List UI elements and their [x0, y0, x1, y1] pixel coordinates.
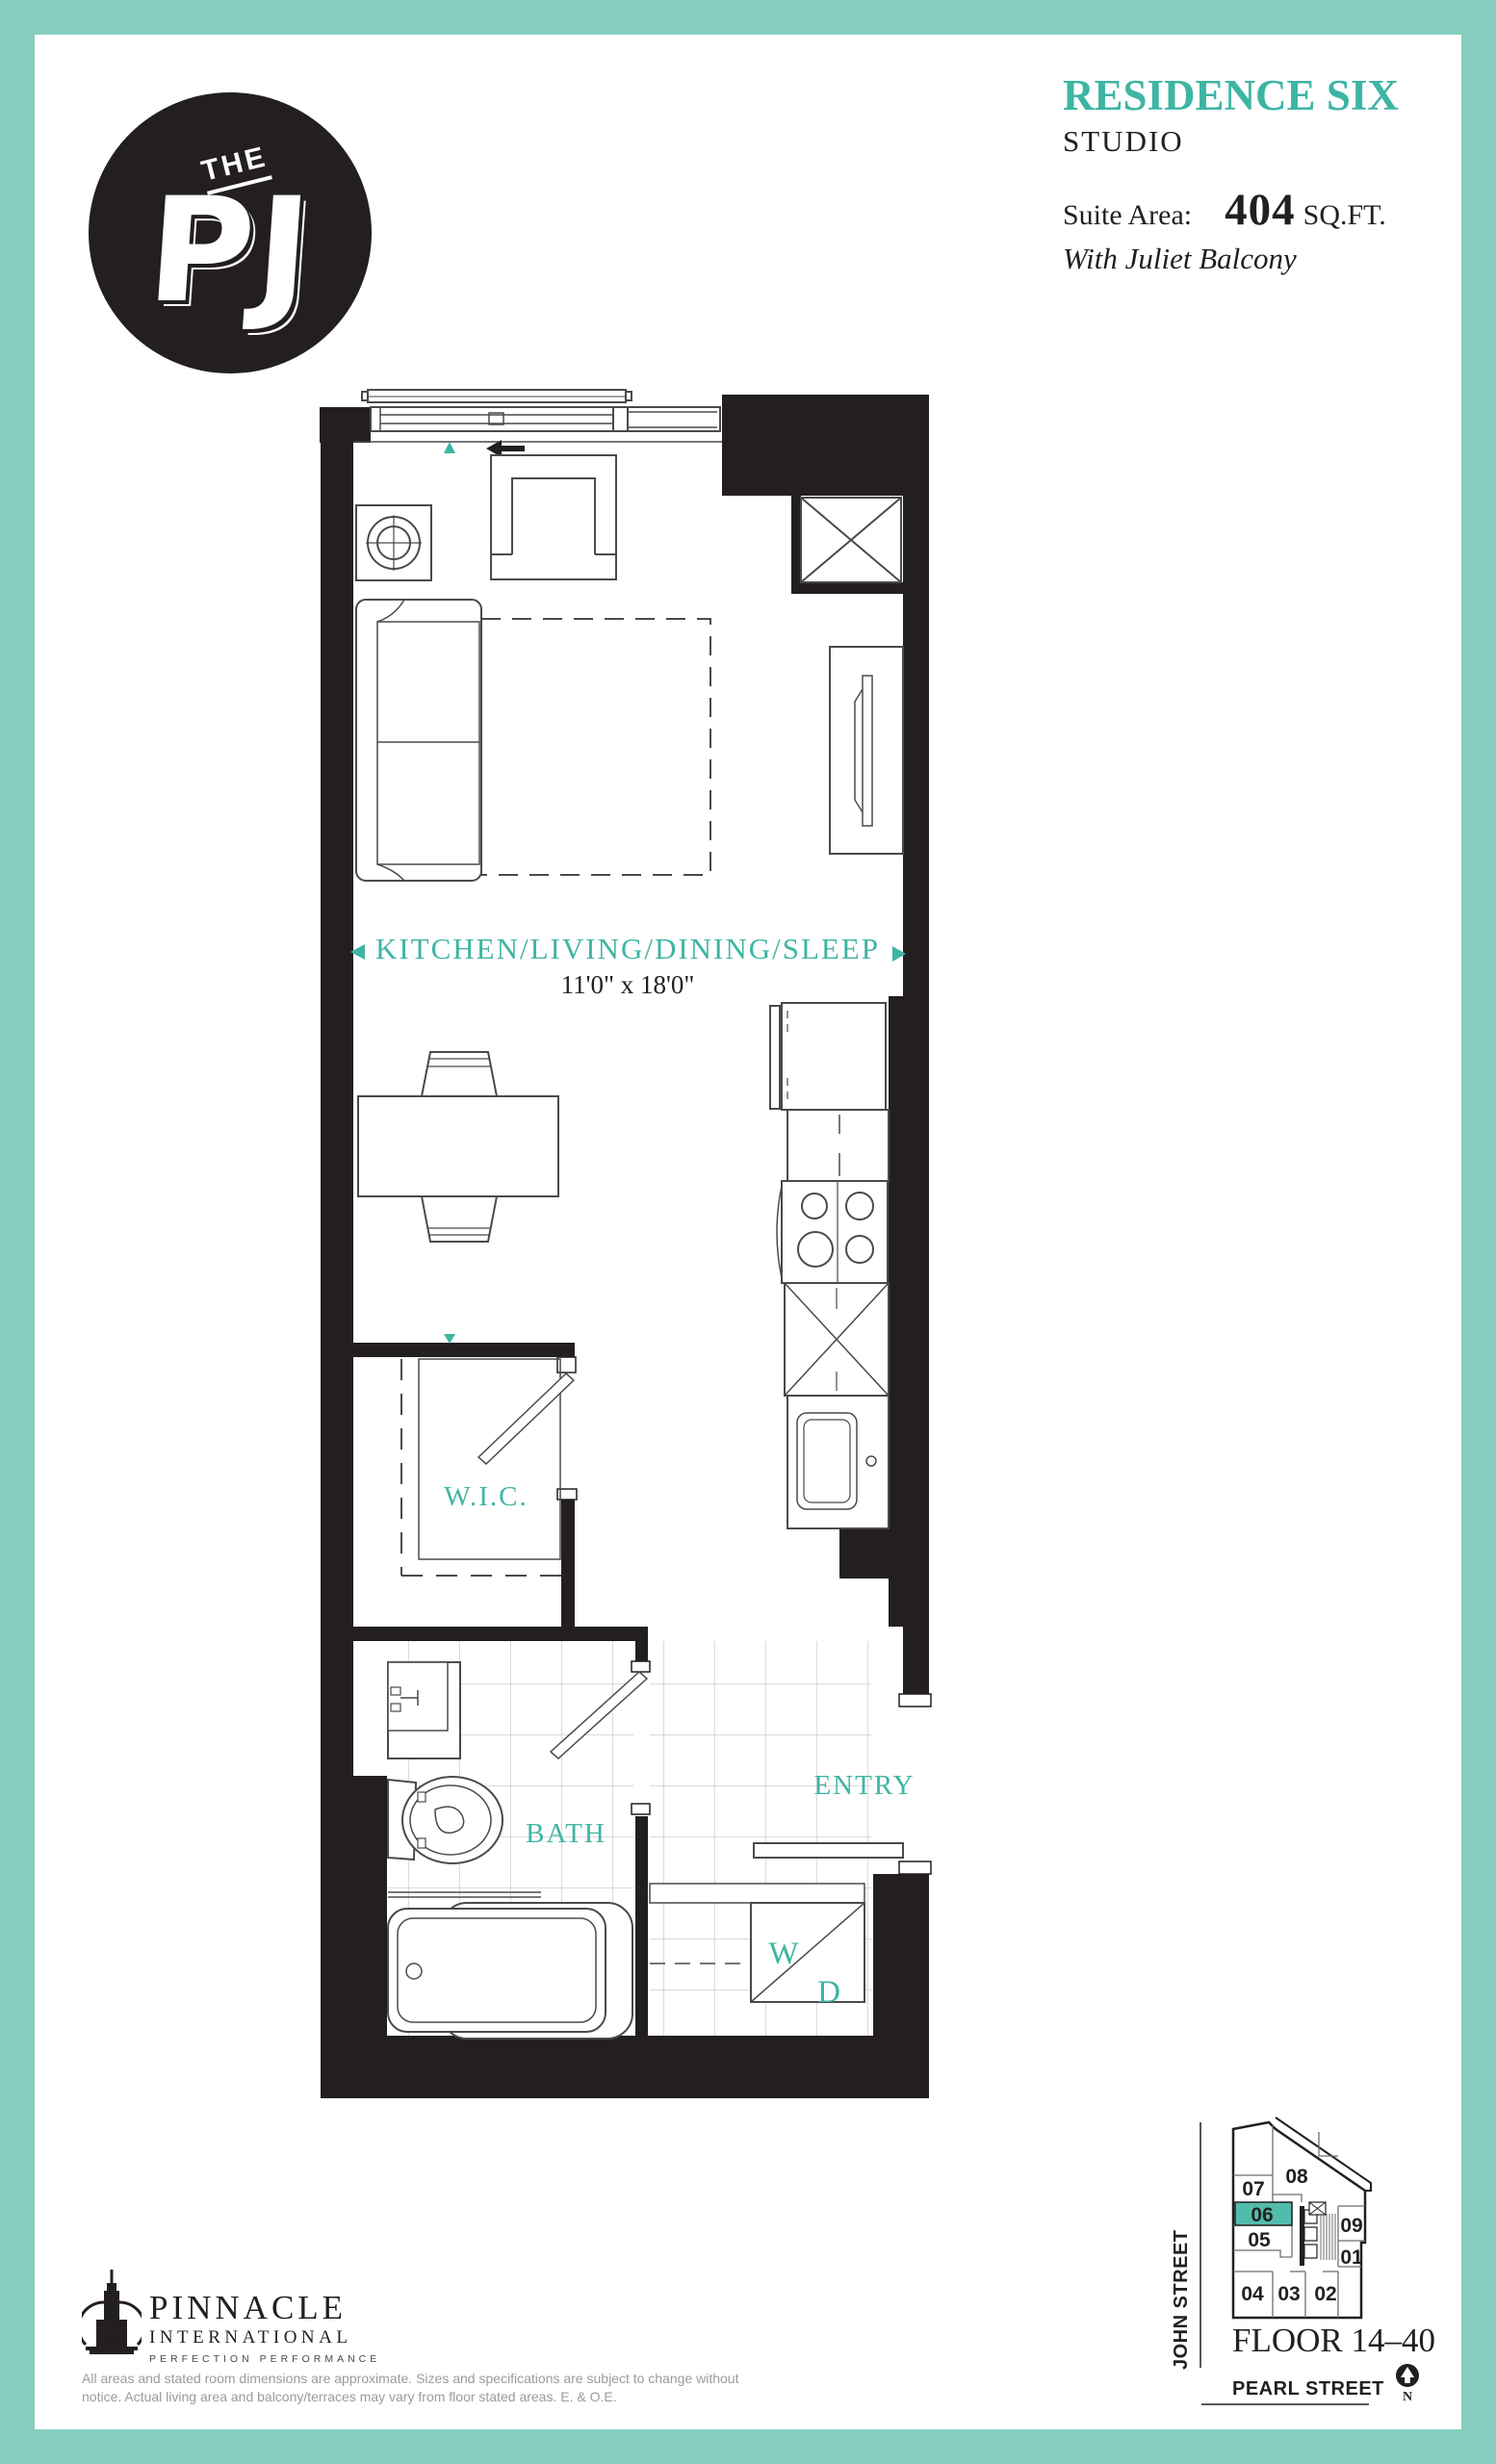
north-compass: N: [1396, 2364, 1419, 2404]
keyplan-street-left: JOHN STREET: [1171, 2229, 1192, 2370]
washer-label: W: [768, 1937, 800, 1971]
keyplan-street-bottom: PEARL STREET: [1232, 2378, 1384, 2400]
dining-table: [358, 1052, 558, 1242]
suite-type: STUDIO: [1063, 124, 1409, 159]
brand-name-2: INTERNATIONAL: [149, 2327, 380, 2348]
suite-area-label: Suite Area:: [1063, 199, 1192, 232]
dishwasher: [785, 1283, 889, 1396]
stove: [777, 1181, 888, 1283]
juliet-balcony-railing: [362, 390, 632, 402]
fridge: [770, 1003, 886, 1110]
keyplan-unit-03: 03: [1277, 2283, 1300, 2305]
keyplan-unit-06: 06: [1251, 2204, 1273, 2226]
brand-tagline: PERFECTION PERFORMANCE: [149, 2353, 380, 2365]
entry-closet-shelf: [650, 1884, 864, 1903]
keyplan-unit-09: 09: [1340, 2215, 1362, 2237]
keyplan-unit-08: 08: [1285, 2166, 1308, 2188]
pinnacle-tower-icon: [82, 2270, 142, 2358]
floorplan-page: { "logo": { "the": "THE", "pj": "PJ" }, …: [0, 0, 1496, 2464]
keyplan-core: [1300, 2202, 1335, 2266]
keyplan-unit-04: 04: [1241, 2283, 1264, 2305]
keyplan-unit-02: 02: [1314, 2283, 1336, 2305]
keyplan-floor-range: FLOOR 14–40: [1232, 2322, 1435, 2359]
residence-title: RESIDENCE SIX: [1063, 73, 1409, 118]
wic-label: W.I.C.: [444, 1481, 528, 1512]
bed-dashed-outline: [481, 619, 710, 875]
kitchen-counter: [787, 1110, 889, 1181]
bathtub: [388, 1903, 632, 2039]
keyplan-unit-01: 01: [1340, 2246, 1363, 2269]
window-band: [353, 407, 722, 442]
disclaimer: All areas and stated room dimensions are…: [82, 2370, 813, 2407]
disclaimer-line-1: All areas and stated room dimensions are…: [82, 2370, 813, 2388]
dryer-label: D: [817, 1975, 842, 2010]
suite-area-unit: SQ.FT.: [1303, 199, 1386, 232]
compass-n: N: [1403, 2390, 1412, 2404]
suite-area-value: 404: [1225, 184, 1296, 236]
brand-name: PINNACLE: [149, 2291, 380, 2324]
shaft: [801, 498, 901, 582]
title-block: RESIDENCE SIX STUDIO Suite Area: 404 SQ.…: [1063, 73, 1409, 276]
keyplan-unit-05: 05: [1248, 2229, 1271, 2251]
teal-triangle-top: [444, 442, 455, 453]
side-table: [356, 505, 431, 580]
keyplan-unit-07: 07: [1242, 2178, 1264, 2200]
entry-door-leaf: [754, 1843, 903, 1858]
main-room-dims: 11'0" x 18'0": [561, 970, 695, 999]
developer-brand: PINNACLE INTERNATIONAL PERFECTION PERFOR…: [82, 2270, 142, 2363]
keyplan: JOHN STREET: [1160, 2108, 1449, 2416]
wic-closet: [401, 1359, 574, 1576]
entry-label: ENTRY: [813, 1770, 915, 1801]
sofa: [356, 600, 481, 881]
armchair: [491, 455, 616, 579]
suite-area-line: Suite Area: 404 SQ.FT.: [1063, 184, 1409, 236]
pj-logo: THE PJ: [89, 92, 372, 373]
suite-subtitle: With Juliet Balcony: [1063, 242, 1409, 276]
bath-label: BATH: [526, 1818, 606, 1849]
kitchen-sink: [787, 1396, 889, 1528]
vanity: [388, 1662, 460, 1758]
teal-triangle-wic: [444, 1334, 455, 1344]
main-room-label: KITCHEN/LIVING/DINING/SLEEP: [375, 932, 880, 965]
disclaimer-line-2: notice. Actual living area and balcony/t…: [82, 2388, 813, 2406]
wic-door-leaf: [478, 1373, 574, 1464]
tv-console: [830, 647, 903, 854]
toilet: [388, 1777, 503, 1863]
floor-plan: KITCHEN/LIVING/DINING/SLEEP 11'0" x 18'0…: [318, 385, 934, 2108]
logo-pj-text: PJ: [143, 179, 317, 323]
